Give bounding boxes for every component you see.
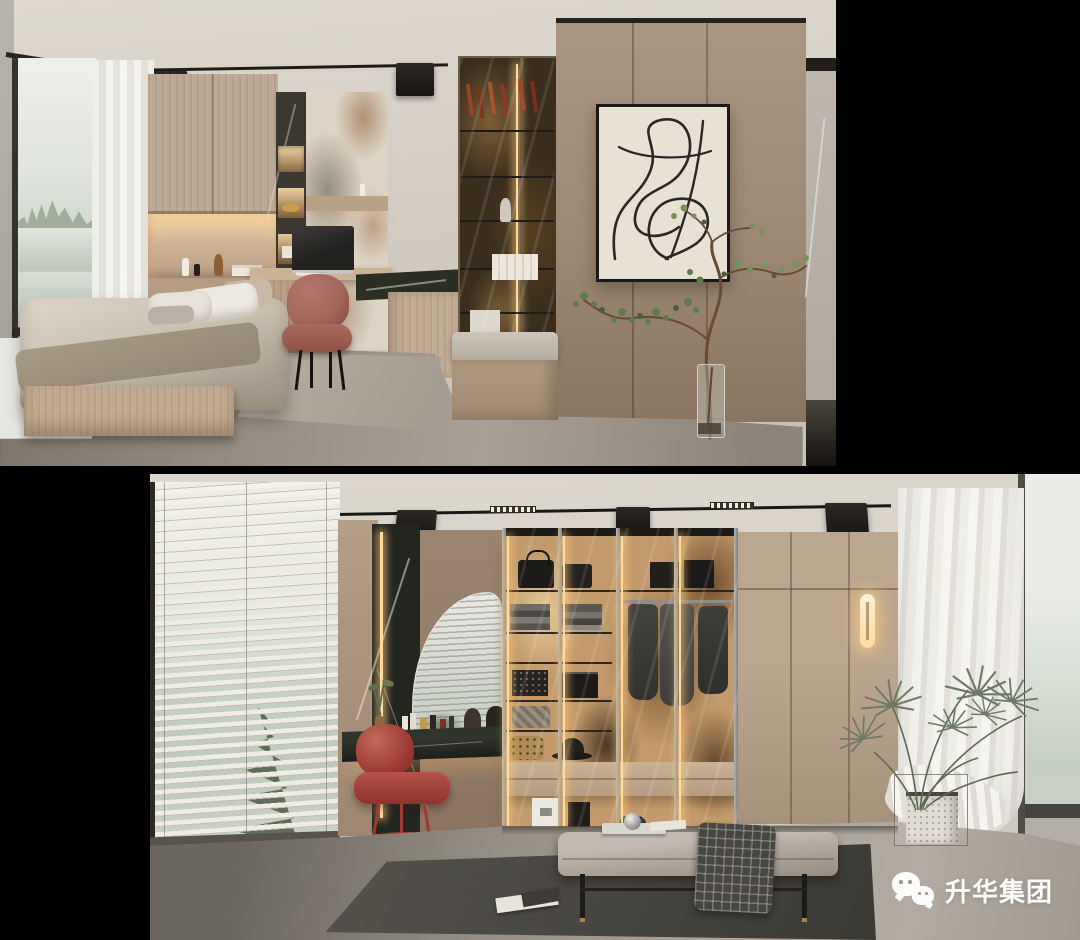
pillow-grey	[148, 305, 195, 325]
marble-vein	[366, 279, 446, 290]
cabinet-seam	[790, 532, 792, 824]
photo-bedroom	[0, 0, 836, 466]
wardrobe-upper	[148, 74, 278, 214]
decor-figurine	[214, 254, 223, 276]
green-branch-plant	[538, 182, 828, 440]
poster-canvas: 升华集团	[0, 0, 1080, 940]
chair-leg	[310, 352, 313, 388]
glass-sphere	[624, 813, 641, 830]
candle	[360, 184, 365, 196]
wechat-icon	[890, 867, 936, 913]
vanity-chair-seat	[354, 772, 450, 804]
window-frame-edge	[150, 482, 155, 850]
door-seam	[212, 74, 214, 214]
cabinet-seam	[738, 588, 898, 590]
sheer-curtain	[92, 60, 154, 334]
ceiling-vent	[710, 502, 754, 509]
blind-cord	[246, 482, 247, 850]
decor-vase-white	[182, 258, 189, 276]
gold-bowl	[282, 204, 300, 212]
blind-cord	[164, 482, 165, 850]
glass-wardrobe	[502, 528, 738, 830]
watermark-text: 升华集团	[945, 872, 1053, 909]
chair-leg	[329, 352, 332, 388]
vase-sediment	[698, 423, 721, 434]
vase-branch-stem	[707, 367, 713, 425]
bench-leg	[580, 874, 585, 922]
bed-frame	[24, 386, 234, 436]
decor-vase-black	[194, 264, 200, 276]
header-reveal	[806, 58, 836, 71]
shelf-niche-lit	[278, 146, 304, 172]
vanity-chair-back	[356, 724, 414, 778]
wechat-bubble-tail	[925, 901, 933, 909]
glass-vase	[697, 364, 725, 438]
blind-cord	[326, 482, 327, 850]
watermark: 升华集团	[890, 866, 1053, 914]
ceiling-vent	[490, 506, 536, 513]
plaid-throw	[694, 822, 776, 914]
blind-slats	[150, 482, 340, 850]
bench-leg	[802, 874, 807, 922]
desk-chair-back	[287, 274, 349, 330]
blinds-window	[150, 482, 340, 850]
palm-plant	[840, 624, 1060, 814]
spotlight	[396, 63, 434, 96]
ceiling-reveal	[556, 18, 806, 23]
photo-dressing-room: 升华集团	[150, 474, 1080, 940]
shelf-niche-lit	[278, 188, 304, 218]
magazines	[496, 886, 568, 916]
wall-shelf	[306, 196, 388, 211]
monitor-screen	[292, 226, 354, 274]
mist-layer	[18, 228, 96, 288]
wardrobe-glass	[502, 528, 738, 830]
desk-chair-seat	[282, 324, 352, 352]
